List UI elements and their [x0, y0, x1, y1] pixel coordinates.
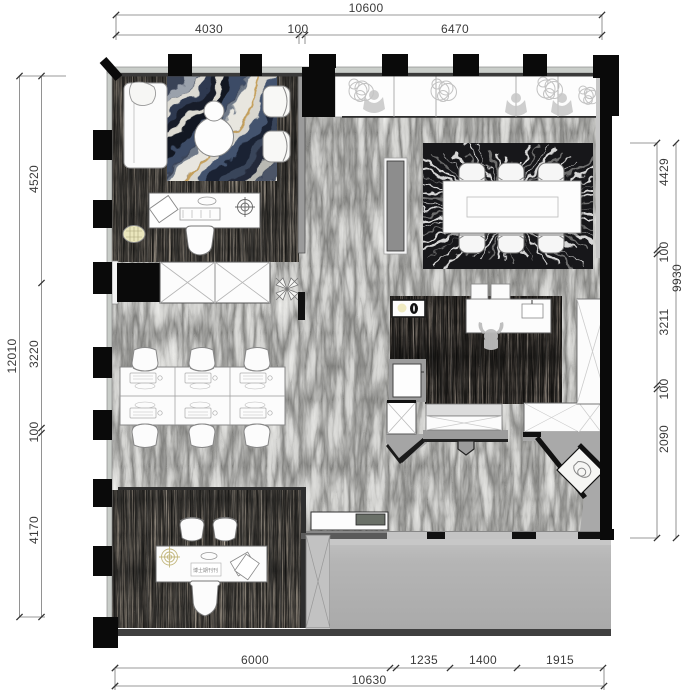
svg-text:1400: 1400	[469, 653, 497, 667]
svg-text:3220: 3220	[27, 340, 41, 368]
svg-text:12010: 12010	[5, 339, 19, 374]
svg-text:6000: 6000	[241, 653, 269, 667]
svg-text:3211: 3211	[657, 308, 671, 335]
svg-text:1235: 1235	[410, 653, 438, 667]
svg-text:10600: 10600	[349, 1, 384, 15]
svg-text:2090: 2090	[657, 425, 671, 453]
svg-text:博士期刊刊: 博士期刊刊	[193, 567, 218, 574]
svg-text:4170: 4170	[27, 516, 41, 544]
svg-text:4429: 4429	[657, 158, 671, 186]
svg-text:1915: 1915	[546, 653, 574, 667]
svg-text:100: 100	[288, 22, 309, 36]
svg-text:9930: 9930	[670, 264, 684, 292]
svg-text:100: 100	[657, 242, 671, 263]
svg-text:10630: 10630	[352, 673, 387, 687]
svg-text:4030: 4030	[195, 22, 223, 36]
svg-text:6470: 6470	[441, 22, 469, 36]
svg-text:4520: 4520	[27, 165, 41, 193]
svg-text:100: 100	[657, 379, 671, 400]
svg-text:100: 100	[27, 422, 41, 443]
